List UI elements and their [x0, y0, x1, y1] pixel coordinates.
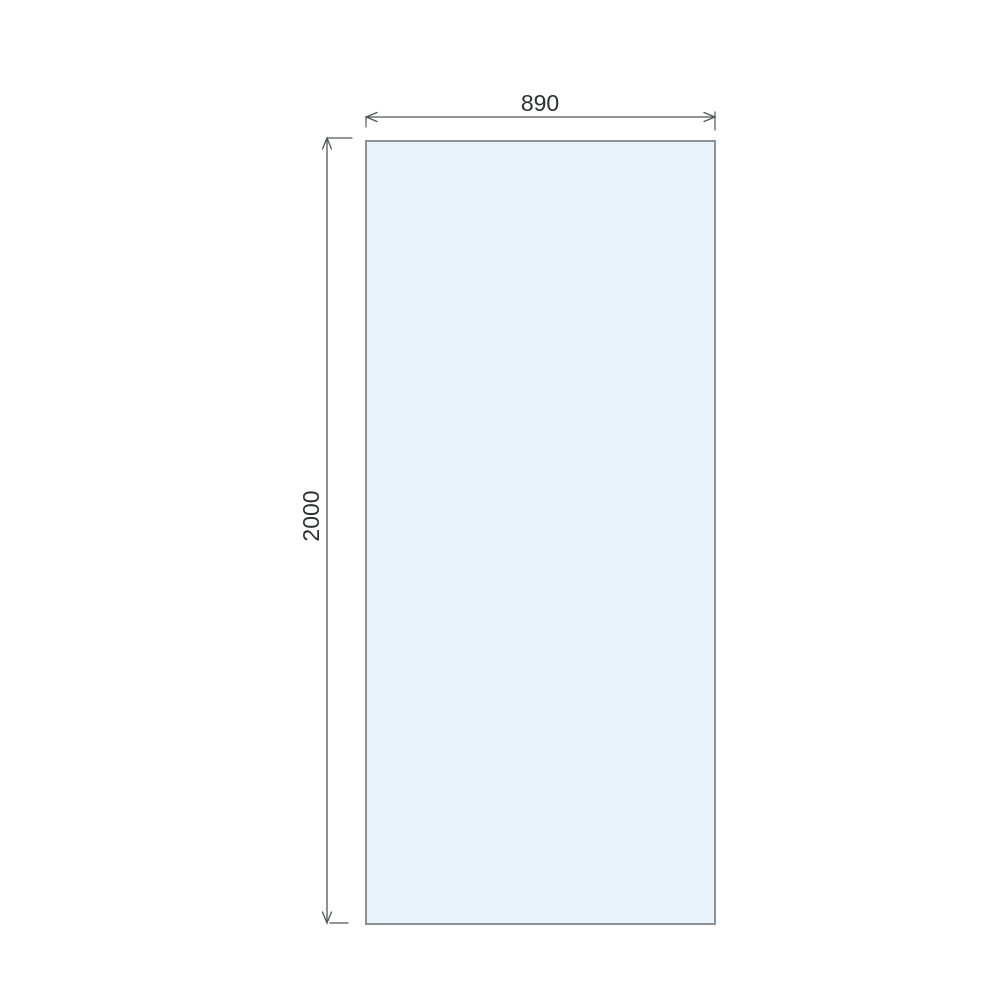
- height-dimension: 2000: [298, 138, 352, 923]
- width-dimension: 890: [366, 90, 715, 130]
- glass-panel: [366, 141, 715, 924]
- drawing-canvas: 890 2000: [0, 0, 1005, 1005]
- width-dimension-label: 890: [521, 90, 559, 116]
- panel-dimension-drawing: 890 2000: [0, 0, 1005, 1005]
- height-dimension-label: 2000: [298, 490, 324, 541]
